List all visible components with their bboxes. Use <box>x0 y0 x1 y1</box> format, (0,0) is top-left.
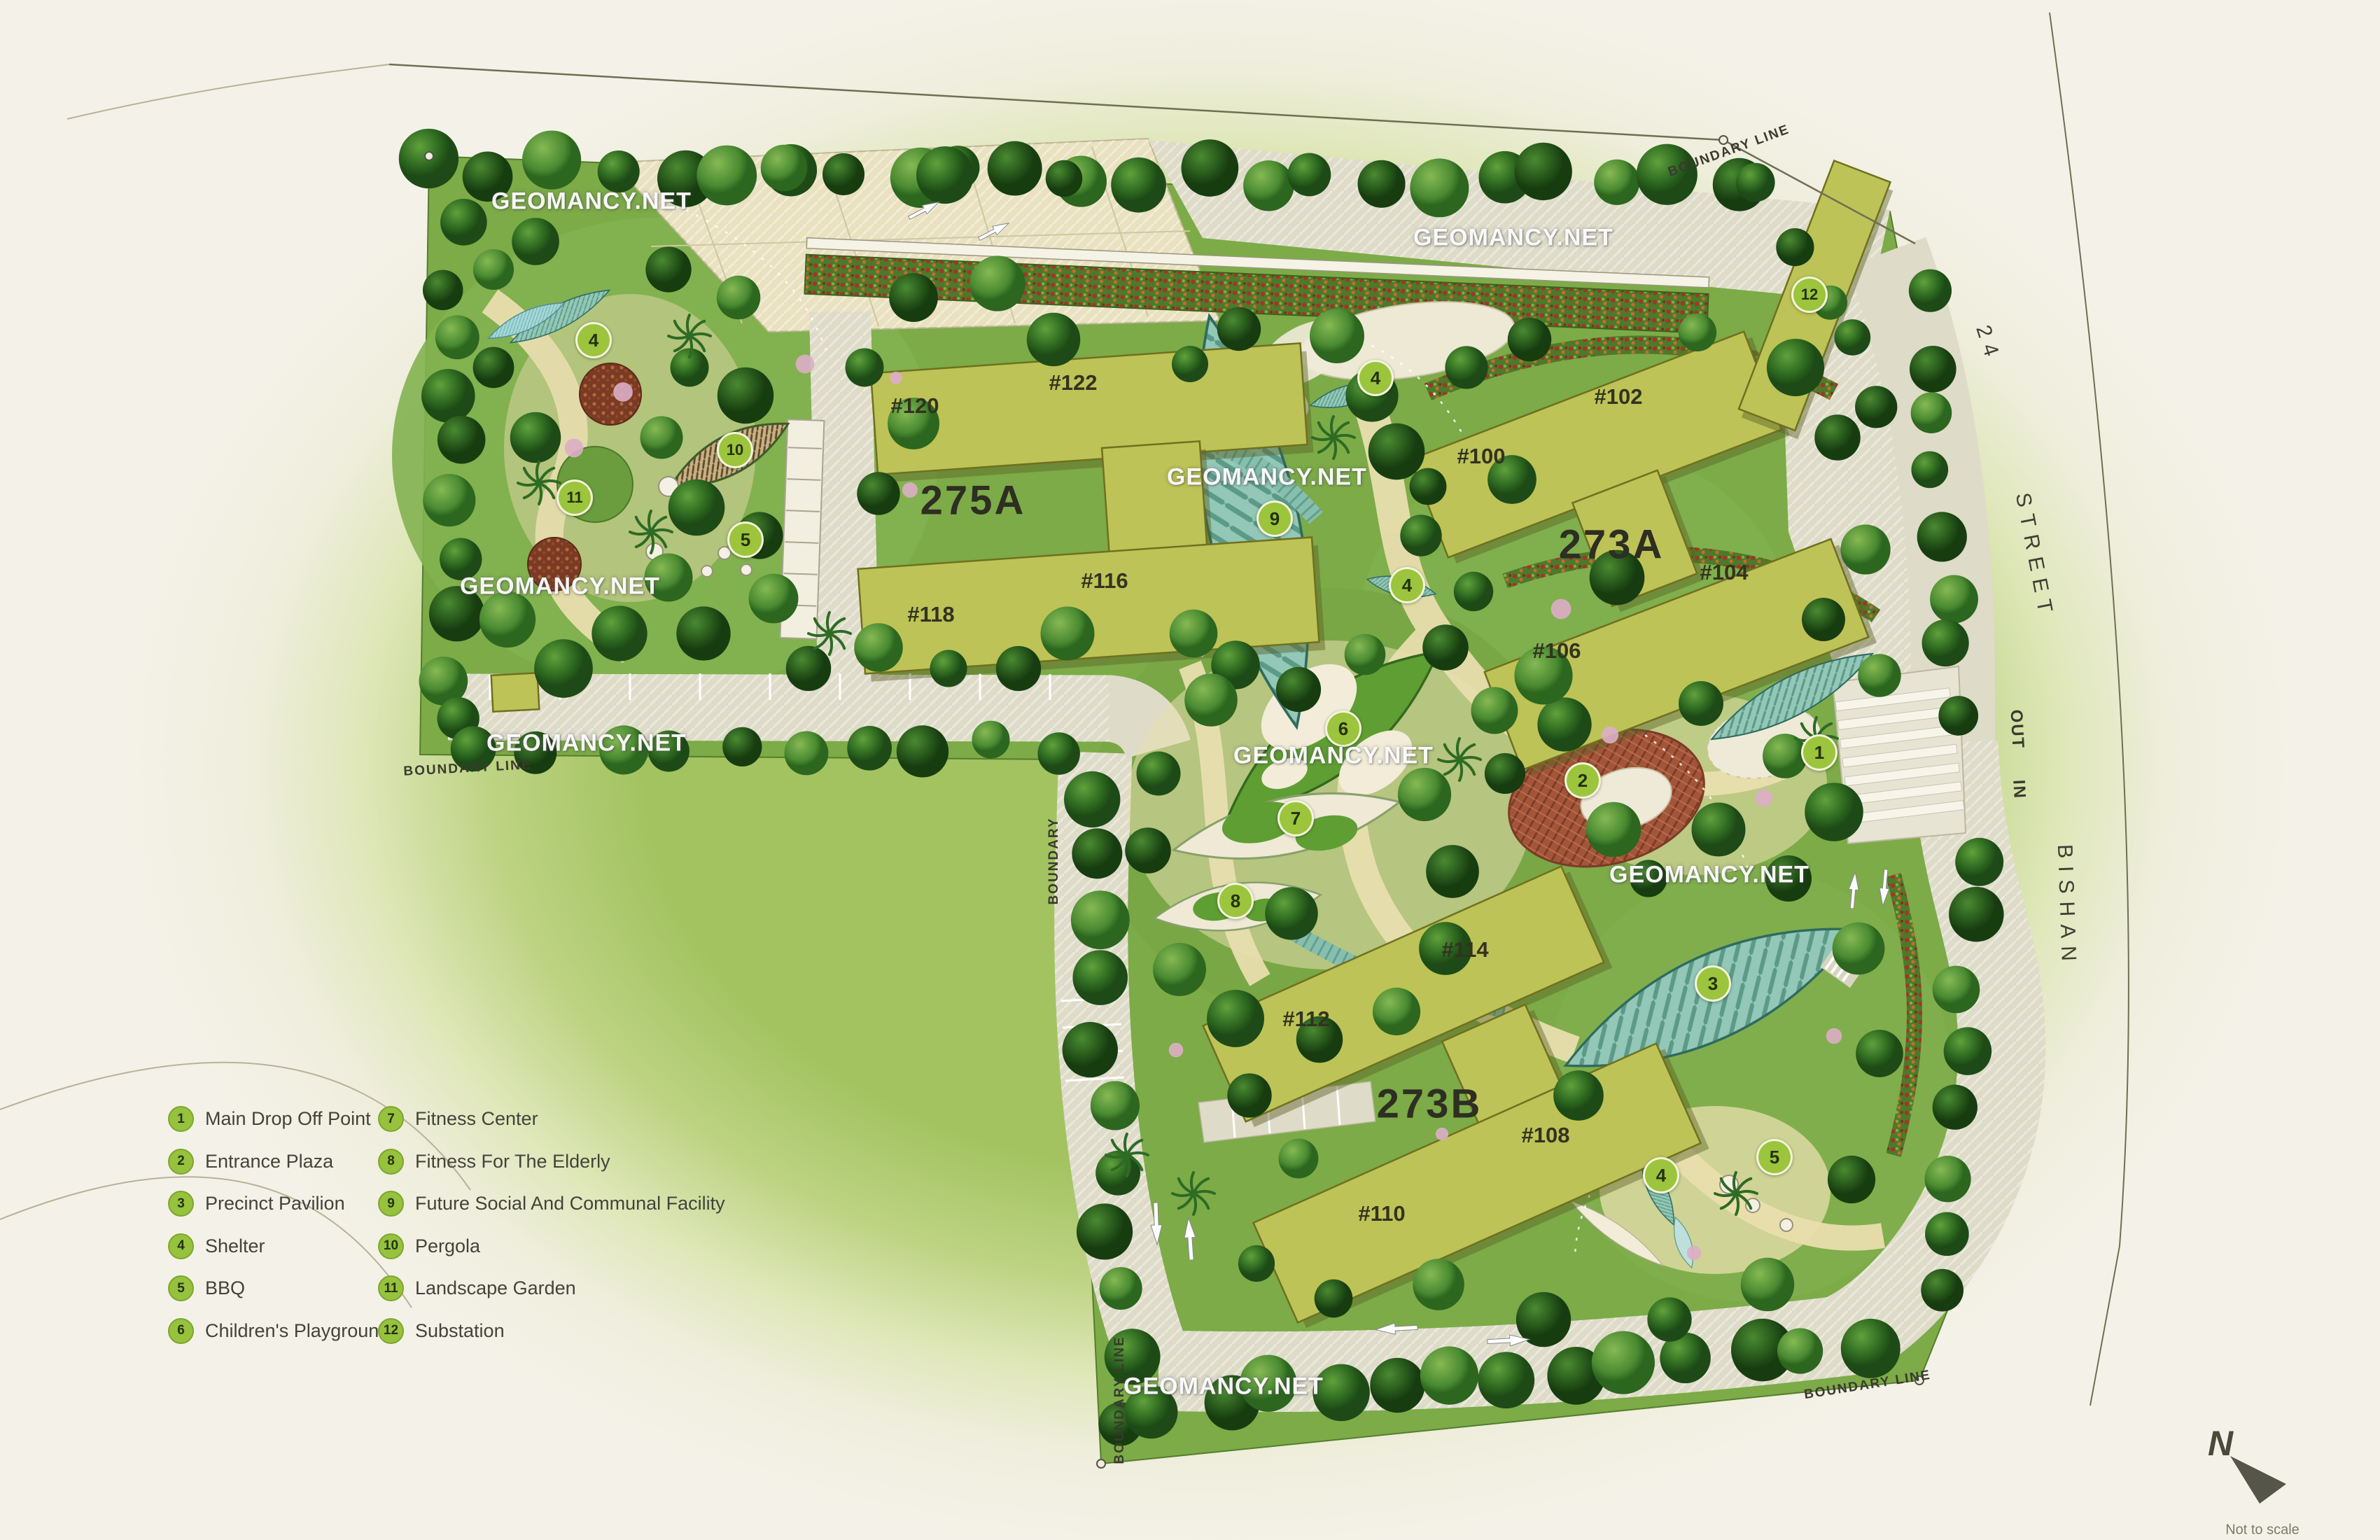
tree-icon <box>440 199 487 246</box>
tree-icon <box>1955 838 2003 886</box>
legend-number-badge: 8 <box>378 1149 404 1175</box>
tree-icon <box>676 606 730 660</box>
site-plan-graphic <box>0 0 2380 1540</box>
unit-label: #114 <box>1441 937 1488 962</box>
tree-icon <box>645 246 691 292</box>
unit-label: #118 <box>907 602 954 627</box>
tree-icon <box>1037 732 1080 775</box>
tree-icon <box>1041 607 1095 661</box>
legend-item: 2Entrance Plaza <box>168 1149 333 1175</box>
tree-icon <box>889 273 938 322</box>
unit-label: #112 <box>1282 1007 1329 1032</box>
tree-icon <box>1856 1030 1903 1077</box>
tree-icon <box>1370 1358 1424 1413</box>
site-plan-canvas: GEOMANCY.NETGEOMANCY.NETGEOMANCY.NETGEOM… <box>0 0 2380 1540</box>
tree-icon <box>423 270 463 311</box>
map-marker-2: 2 <box>1564 762 1601 799</box>
tree-icon <box>1420 1346 1478 1404</box>
tree-icon <box>1072 950 1128 1005</box>
watermark-text: GEOMANCY.NET <box>1167 464 1367 491</box>
tree-icon <box>1909 269 1952 312</box>
tree-icon <box>1835 319 1871 356</box>
map-marker-4: 4 <box>575 322 612 358</box>
tree-icon <box>1137 752 1181 796</box>
tree-icon <box>1227 1073 1271 1117</box>
tree-icon <box>1805 783 1863 841</box>
tree-icon <box>1910 346 1956 393</box>
map-marker-10: 10 <box>717 432 753 468</box>
tree-icon <box>1841 1319 1900 1378</box>
tree-icon <box>930 650 967 687</box>
tree-icon <box>822 153 864 195</box>
tree-icon <box>847 726 892 771</box>
tree-icon <box>1072 828 1122 878</box>
tree-icon <box>421 369 475 423</box>
tree-icon <box>1921 1269 1963 1312</box>
tree-icon <box>1802 598 1845 641</box>
tree-icon <box>846 349 884 387</box>
tree-icon <box>423 474 475 526</box>
legend-item: 7Fitness Center <box>378 1106 538 1132</box>
blossom-shrub-icon <box>1602 727 1618 743</box>
tree-icon <box>1063 1022 1118 1077</box>
blossom-shrub-icon <box>1687 1246 1701 1260</box>
tree-icon <box>1368 423 1425 480</box>
tree-icon <box>1691 802 1745 856</box>
legend-label: Fitness For The Elderly <box>415 1151 610 1172</box>
traffic-direction-label: OUT <box>2006 709 2028 750</box>
tree-icon <box>1207 990 1264 1047</box>
tree-icon <box>512 218 559 265</box>
unit-label: #100 <box>1457 444 1506 469</box>
tree-icon <box>1949 887 2004 942</box>
tree-icon <box>1064 771 1120 827</box>
legend-item: 9Future Social And Communal Facility <box>378 1191 725 1217</box>
tree-icon <box>1592 1331 1655 1394</box>
tree-icon <box>1413 1259 1464 1310</box>
unit-label: #102 <box>1595 384 1643 409</box>
tree-icon <box>1410 158 1469 217</box>
tree-icon <box>749 574 799 624</box>
tree-icon <box>1238 1245 1275 1282</box>
tree-icon <box>1172 346 1208 382</box>
tree-icon <box>1077 1203 1133 1259</box>
tree-icon <box>1814 414 1860 460</box>
legend-item: 1Main Drop Off Point <box>168 1106 371 1132</box>
legend-number-badge: 5 <box>168 1275 194 1301</box>
legend-item: 5BBQ <box>168 1275 245 1301</box>
tree-icon <box>1398 768 1451 821</box>
tree-icon <box>1828 1156 1875 1203</box>
legend-item: 3Precinct Pavilion <box>168 1191 345 1217</box>
tree-icon <box>1930 575 1978 624</box>
tree-icon <box>1422 624 1469 671</box>
tree-icon <box>1933 1085 1977 1130</box>
legend-label: Children's Playground <box>205 1320 389 1342</box>
tree-icon <box>598 150 640 192</box>
tree-icon <box>1287 153 1331 197</box>
legend-label: Entrance Plaza <box>205 1151 333 1172</box>
map-marker-4: 4 <box>1389 567 1425 603</box>
tree-icon <box>1537 697 1591 751</box>
tree-icon <box>857 472 899 514</box>
legend-item: 8Fitness For The Elderly <box>378 1149 610 1175</box>
watermark-text: GEOMANCY.NET <box>1413 225 1613 252</box>
tree-icon <box>969 255 1025 311</box>
tree-icon <box>668 479 725 536</box>
tree-icon <box>591 605 647 661</box>
traffic-direction-label: IN <box>2008 779 2029 799</box>
tree-icon <box>510 412 561 463</box>
tree-icon <box>1373 988 1420 1035</box>
watermark-text: GEOMANCY.NET <box>1233 743 1434 770</box>
tree-icon <box>1217 307 1261 351</box>
tree-icon <box>1153 943 1206 996</box>
tree-icon <box>1594 160 1639 205</box>
tree-icon <box>1637 144 1697 205</box>
legend-number-badge: 6 <box>168 1318 194 1344</box>
north-label: N <box>2208 1423 2233 1464</box>
tree-icon <box>1184 673 1238 727</box>
legend-item: 12Substation <box>378 1318 505 1344</box>
tree-icon <box>1736 163 1775 202</box>
unit-label: #116 <box>1081 568 1128 594</box>
tree-icon <box>916 146 974 204</box>
tree-icon <box>1833 923 1885 975</box>
tree-icon <box>1400 514 1441 556</box>
legend-label: Future Social And Communal Facility <box>415 1193 725 1214</box>
legend-label: Substation <box>415 1320 505 1342</box>
legend-label: Pergola <box>415 1235 480 1257</box>
tree-icon <box>640 416 682 458</box>
legend-label: BBQ <box>205 1277 245 1299</box>
legend-number-badge: 11 <box>378 1275 404 1301</box>
tree-icon <box>988 141 1042 196</box>
legend-label: Shelter <box>205 1235 265 1257</box>
tree-icon <box>1508 318 1551 361</box>
map-marker-11: 11 <box>556 479 593 516</box>
tree-icon <box>1553 1070 1604 1121</box>
legend-number-badge: 4 <box>168 1233 194 1259</box>
tree-icon <box>1091 1081 1140 1130</box>
tree-icon <box>1485 753 1525 794</box>
tree-icon <box>1840 524 1890 574</box>
tree-icon <box>1454 572 1493 611</box>
tree-icon <box>1776 228 1814 266</box>
tree-icon <box>1586 802 1641 857</box>
blossom-shrub-icon <box>1826 1028 1842 1044</box>
tree-icon <box>1046 160 1082 197</box>
tree-icon <box>522 130 581 189</box>
unit-label: #122 <box>1049 370 1098 395</box>
boundary-line-label: BOUNDARY <box>1046 817 1062 904</box>
tree-icon <box>786 646 831 691</box>
blossom-shrub-icon <box>1756 790 1773 807</box>
tree-icon <box>1345 634 1386 675</box>
legend-number-badge: 1 <box>168 1106 194 1132</box>
tree-icon <box>972 721 1009 759</box>
watermark-text: GEOMANCY.NET <box>491 188 692 216</box>
unit-label: #108 <box>1522 1123 1570 1148</box>
tree-icon <box>1111 157 1166 213</box>
not-to-scale-note: Not to scale <box>2225 1522 2299 1539</box>
map-marker-3: 3 <box>1695 965 1731 1002</box>
tree-icon <box>1310 309 1364 363</box>
tree-icon <box>717 367 773 423</box>
tree-icon <box>1125 827 1171 874</box>
legend-number-badge: 9 <box>378 1191 404 1217</box>
unit-label: #120 <box>891 393 939 419</box>
tree-icon <box>717 276 760 319</box>
tree-icon <box>996 646 1041 691</box>
legend-label: Precinct Pavilion <box>205 1193 345 1214</box>
block-label: 273B <box>1377 1081 1483 1128</box>
map-marker-5: 5 <box>727 521 764 558</box>
tree-icon <box>761 145 808 192</box>
tree-icon <box>1515 143 1572 200</box>
map-marker-6: 6 <box>1325 710 1361 747</box>
tree-icon <box>437 416 486 464</box>
map-marker-4: 4 <box>1643 1157 1679 1193</box>
tree-icon <box>1777 1328 1823 1373</box>
unit-label: #104 <box>1700 560 1749 585</box>
tree-icon <box>1279 1139 1319 1179</box>
tree-icon <box>473 347 514 388</box>
tree-icon <box>1410 468 1447 505</box>
tree-icon <box>1944 1027 1991 1074</box>
block-label: 273A <box>1559 521 1665 568</box>
tree-icon <box>1741 1258 1794 1311</box>
tree-icon <box>784 731 828 775</box>
tree-icon <box>473 249 514 290</box>
tree-icon <box>1647 1297 1691 1341</box>
blossom-shrub-icon <box>1169 1043 1184 1058</box>
legend-number-badge: 10 <box>378 1233 404 1259</box>
legend-label: Fitness Center <box>415 1108 538 1130</box>
tree-icon <box>1767 339 1824 396</box>
legend-item: 10Pergola <box>378 1233 480 1259</box>
tree-icon <box>1181 139 1238 197</box>
tree-icon <box>1933 966 1980 1014</box>
watermark-text: GEOMANCY.NET <box>1123 1373 1324 1401</box>
legend-number-badge: 12 <box>378 1318 404 1344</box>
legend-item: 6Children's Playground <box>168 1318 389 1344</box>
tree-icon <box>435 315 479 359</box>
tree-icon <box>1911 451 1948 489</box>
unit-label: #110 <box>1358 1201 1405 1226</box>
tree-icon <box>1478 1352 1534 1408</box>
tree-icon <box>1855 386 1897 428</box>
watermark-text: GEOMANCY.NET <box>460 573 660 601</box>
watermark-text: GEOMANCY.NET <box>486 730 687 757</box>
legend-label: Main Drop Off Point <box>205 1108 371 1130</box>
tree-icon <box>1426 845 1479 898</box>
blossom-shrub-icon <box>1551 599 1571 619</box>
map-marker-4: 4 <box>1357 360 1394 396</box>
tree-icon <box>1471 687 1518 734</box>
block-label: 275A <box>920 477 1026 524</box>
map-marker-12: 12 <box>1791 276 1828 313</box>
legend-number-badge: 3 <box>168 1191 194 1217</box>
tree-icon <box>1679 681 1723 726</box>
blossom-shrub-icon <box>565 439 584 458</box>
tree-icon <box>534 639 593 698</box>
tree-icon <box>854 623 903 672</box>
legend-number-badge: 2 <box>168 1149 194 1175</box>
blossom-shrub-icon <box>613 382 633 402</box>
tree-icon <box>1858 654 1900 696</box>
tree-icon <box>722 727 762 766</box>
tree-icon <box>1071 890 1130 949</box>
north-arrow-icon <box>2230 1456 2286 1504</box>
blossom-shrub-icon <box>902 482 918 498</box>
unit-label: #106 <box>1533 638 1581 664</box>
map-marker-1: 1 <box>1801 734 1837 771</box>
tree-icon <box>1357 160 1405 208</box>
legend-number-badge: 7 <box>378 1106 404 1132</box>
tree-icon <box>1265 887 1317 939</box>
map-marker-8: 8 <box>1217 883 1254 919</box>
tree-icon <box>1243 160 1294 211</box>
map-marker-5: 5 <box>1756 1139 1793 1175</box>
tree-icon <box>1924 1156 1970 1202</box>
tree-icon <box>897 725 948 777</box>
map-marker-7: 7 <box>1277 800 1314 836</box>
blossom-shrub-icon <box>890 372 902 384</box>
tree-icon <box>1315 1280 1353 1318</box>
tree-icon <box>1027 313 1080 366</box>
map-marker-9: 9 <box>1256 500 1293 537</box>
legend-label: Landscape Garden <box>415 1277 576 1299</box>
street-name-label: BISHAN <box>2052 844 2080 969</box>
tree-icon <box>1100 1267 1142 1310</box>
tree-icon <box>1917 512 1967 561</box>
tree-icon <box>1679 314 1716 351</box>
watermark-text: GEOMANCY.NET <box>1609 862 1809 889</box>
tree-icon <box>1911 392 1952 433</box>
blossom-shrub-icon <box>1436 1128 1448 1140</box>
tree-icon <box>1925 1212 1969 1256</box>
tree-icon <box>696 146 757 206</box>
tree-icon <box>1276 667 1321 712</box>
legend-item: 4Shelter <box>168 1233 265 1259</box>
legend-item: 11Landscape Garden <box>378 1275 576 1301</box>
tree-icon <box>1938 696 1978 736</box>
tree-icon <box>1922 619 1969 666</box>
tree-icon <box>1445 346 1487 388</box>
blossom-shrub-icon <box>796 355 815 374</box>
tree-icon <box>1170 610 1218 658</box>
